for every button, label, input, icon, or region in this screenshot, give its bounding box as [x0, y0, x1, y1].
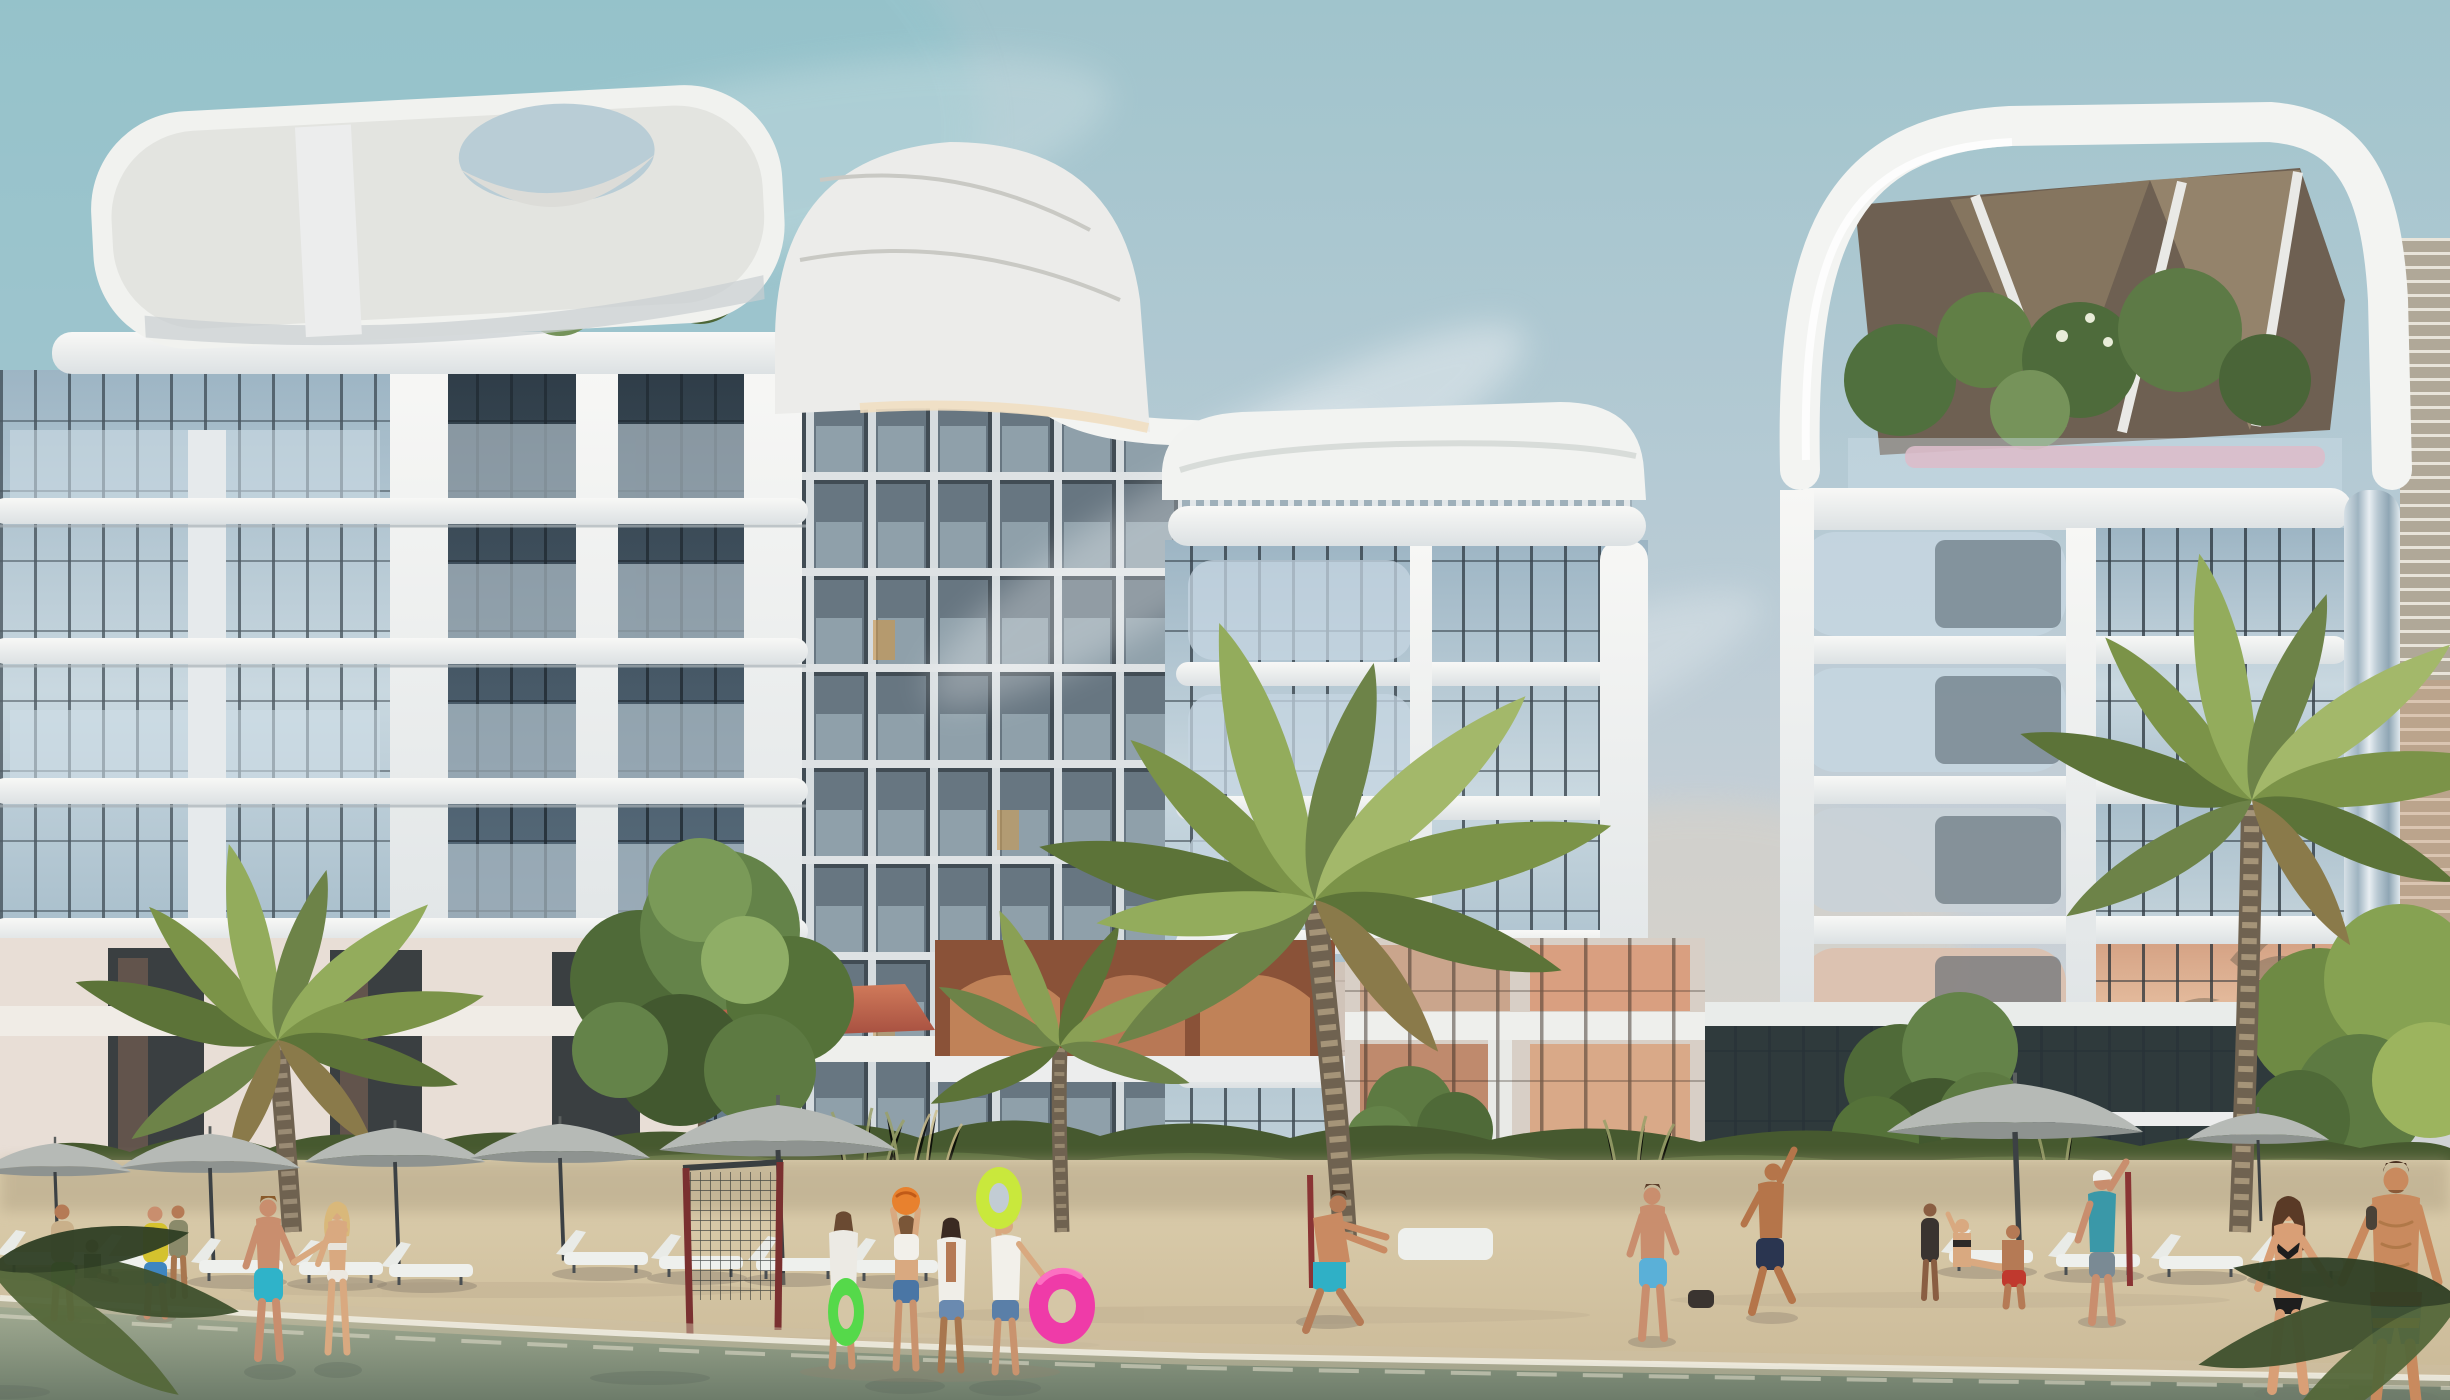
hedge-shadow: [0, 1160, 2450, 1212]
lit-window: [997, 810, 1019, 850]
arm-tattoo: [2366, 1206, 2377, 1230]
net-post: [686, 1168, 690, 1334]
halo-crown-ring: [86, 80, 790, 359]
parapet-slab: [1168, 506, 1646, 546]
white-bench: [1398, 1228, 1493, 1260]
parapet-slab: [1790, 488, 2352, 530]
lit-window: [873, 620, 895, 660]
beach-bag: [1688, 1290, 1714, 1308]
net-mesh: [688, 1172, 778, 1300]
net-post: [778, 1162, 780, 1330]
volleyball-pole: [1310, 1175, 1312, 1288]
volleyball-pole: [2128, 1172, 2130, 1286]
end-tower-crown: [1162, 402, 1646, 500]
beach-resort-rendering: Beachfront luxury residences rendering: [0, 0, 2450, 1400]
rooftop-glass-railing: [1848, 438, 2342, 492]
rendering-stage: Beachfront luxury residences rendering: [0, 0, 2450, 1400]
